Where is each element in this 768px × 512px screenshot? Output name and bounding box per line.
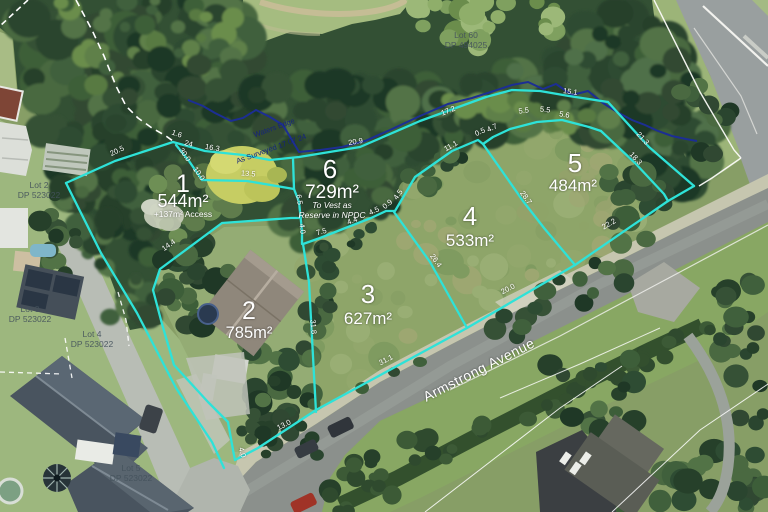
svg-text:To Vest as: To Vest as: [312, 200, 352, 210]
svg-text:Lot 60: Lot 60: [454, 30, 478, 40]
svg-text:4.0: 4.0: [297, 223, 307, 234]
svg-text:484m²: 484m²: [549, 176, 598, 195]
svg-text:DP 523022: DP 523022: [9, 314, 52, 324]
svg-text:5.5: 5.5: [518, 105, 530, 115]
svg-text:2: 2: [242, 297, 256, 325]
svg-text:6.5: 6.5: [294, 194, 305, 206]
svg-text:5.5: 5.5: [540, 105, 551, 115]
svg-text:13.5: 13.5: [241, 168, 256, 178]
svg-text:DP 523022: DP 523022: [71, 339, 114, 349]
svg-text:DP 523022: DP 523022: [18, 190, 61, 200]
svg-text:4: 4: [463, 201, 477, 231]
svg-text:544m²: 544m²: [157, 191, 208, 211]
svg-text:31.8: 31.8: [308, 319, 318, 334]
svg-text:Lot 2: Lot 2: [30, 180, 49, 190]
svg-text:Lot 5: Lot 5: [122, 463, 141, 473]
svg-text:+137m² Access: +137m² Access: [154, 209, 212, 219]
svg-text:DP 523022: DP 523022: [110, 473, 153, 483]
svg-text:627m²: 627m²: [344, 309, 393, 328]
svg-text:5.6: 5.6: [559, 109, 571, 120]
svg-text:6: 6: [323, 154, 337, 184]
svg-text:533m²: 533m²: [446, 231, 495, 250]
svg-text:3: 3: [361, 279, 375, 309]
svg-text:Lot 4: Lot 4: [83, 329, 102, 339]
svg-text:DP 494025: DP 494025: [445, 40, 488, 50]
svg-text:785m²: 785m²: [226, 324, 273, 342]
svg-text:Lot 3: Lot 3: [21, 304, 40, 314]
svg-text:5: 5: [568, 148, 582, 178]
